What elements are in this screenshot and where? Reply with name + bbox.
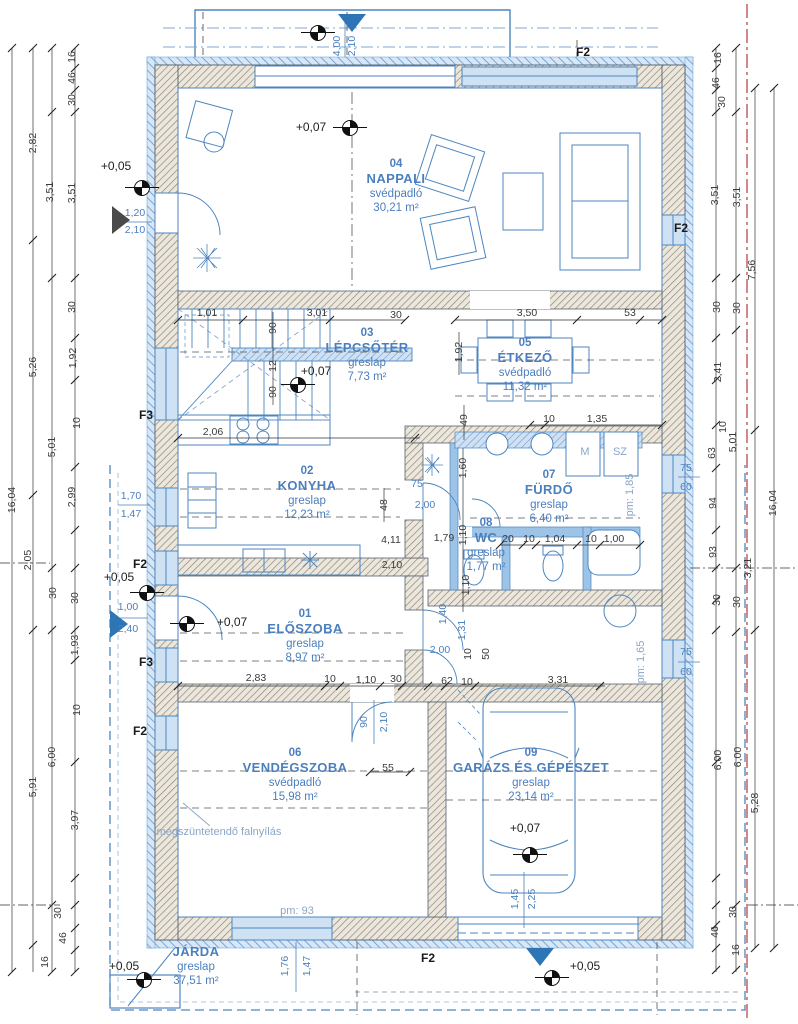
dimension-label: 49 bbox=[458, 414, 470, 426]
room-number: 02 bbox=[278, 464, 337, 478]
opening-dimension-label: 75 bbox=[680, 646, 692, 658]
opening-dimension-label: 1,70 bbox=[121, 490, 141, 502]
dimension-label: 46 bbox=[66, 72, 78, 84]
dimension-label: 30 bbox=[711, 594, 723, 606]
dimension-label: 1,10 bbox=[460, 575, 472, 595]
room-label: 09GARÁZS ÉS GÉPÉSZETgreslap23,14 m² bbox=[453, 746, 609, 804]
note-label: megszüntetendő falnyílás bbox=[157, 826, 282, 838]
dimension-label: 62 bbox=[441, 675, 453, 687]
dimension-label: 3,51 bbox=[44, 182, 56, 202]
opening-dimension-label: 1,20 bbox=[125, 207, 145, 219]
room-label: 03LÉPCSŐTÉRgreslap7,73 m² bbox=[325, 326, 408, 384]
note-label: M bbox=[580, 446, 589, 458]
dimension-label: 30 bbox=[731, 596, 743, 608]
opening-dimension-label: 90 bbox=[358, 716, 370, 728]
dimension-label: 1,92 bbox=[453, 342, 465, 362]
room-number: 03 bbox=[325, 326, 408, 340]
opening-dimension-label: 2,10 bbox=[346, 36, 358, 56]
dimension-label: 30 bbox=[390, 309, 402, 321]
note-label: SZ bbox=[613, 446, 627, 458]
dimension-label: 30 bbox=[69, 592, 81, 604]
opening-dimension-label: 75 bbox=[411, 478, 423, 490]
room-number: 07 bbox=[525, 468, 573, 482]
level-label: +0,05 bbox=[570, 959, 600, 973]
dimension-label: 30 bbox=[66, 94, 78, 106]
opening-dimension-label: 2,25 bbox=[526, 889, 538, 909]
window-type-label: F2 bbox=[576, 45, 590, 59]
dimension-label: 30 bbox=[47, 587, 59, 599]
dimension-label: 93 bbox=[707, 546, 719, 558]
dimension-label: 1,10 bbox=[457, 525, 469, 545]
dimension-label: 3,97 bbox=[69, 810, 81, 830]
dimension-label: 6,00 bbox=[712, 750, 724, 770]
room-number: 09 bbox=[453, 746, 609, 760]
dimension-label: 30 bbox=[727, 906, 739, 918]
dimension-label: 10 bbox=[462, 648, 474, 660]
room-floor: greslap bbox=[325, 356, 408, 370]
level-benchmark-icon bbox=[310, 25, 326, 41]
dimension-label: 4,11 bbox=[381, 534, 401, 546]
note-label: pm: 93 bbox=[280, 905, 314, 917]
dimension-label: 6,00 bbox=[732, 747, 744, 767]
note-label: pm: 1,65 bbox=[635, 641, 647, 684]
dimension-label: 2,41 bbox=[712, 362, 724, 382]
room-name: ÉTKEZŐ bbox=[497, 350, 552, 366]
opening-dimension-label: 4,00 bbox=[331, 36, 343, 56]
opening-dimension-label: 75 bbox=[680, 462, 692, 474]
opening-dimension-label: 2,40 bbox=[118, 623, 138, 635]
opening-dimension-label: 1,47 bbox=[301, 956, 313, 976]
dimension-label: 30 bbox=[716, 96, 728, 108]
opening-dimension-label: 2,10 bbox=[378, 712, 390, 732]
dimension-label: 5,28 bbox=[749, 793, 761, 813]
dimension-label: 5,01 bbox=[46, 437, 58, 457]
dimension-label: 3,50 bbox=[517, 307, 537, 319]
room-label: 07FÜRDŐgreslap6,40 m² bbox=[525, 468, 573, 526]
room-number: 06 bbox=[243, 746, 348, 760]
dimension-label: 30 bbox=[731, 302, 743, 314]
room-floor: greslap bbox=[173, 960, 220, 974]
dimension-label: 30 bbox=[390, 673, 402, 685]
dimension-label: 1,79 bbox=[434, 532, 454, 544]
room-label: 05ÉTKEZŐsvédpadló11,32 m² bbox=[497, 336, 552, 394]
room-label: 06VENDÉGSZOBAsvédpadló15,98 m² bbox=[243, 746, 348, 804]
window-type-label: F3 bbox=[139, 655, 153, 669]
level-benchmark-icon bbox=[290, 377, 306, 393]
opening-dimension-label: 2,10 bbox=[125, 224, 145, 236]
dimension-label: 5,26 bbox=[27, 357, 39, 377]
room-area: 7,73 m² bbox=[325, 370, 408, 384]
dimension-label: 1,10 bbox=[356, 674, 376, 686]
labels-layer: 04NAPPALIsvédpadló30,21 m²03LÉPCSŐTÉRgre… bbox=[0, 0, 798, 1024]
room-number: 08 bbox=[467, 516, 506, 530]
level-benchmark-icon bbox=[136, 972, 152, 988]
dimension-label: 16 bbox=[730, 944, 742, 956]
room-area: 12,23 m² bbox=[278, 508, 337, 522]
window-type-label: F2 bbox=[133, 557, 147, 571]
room-floor: greslap bbox=[467, 546, 506, 560]
level-benchmark-icon bbox=[522, 847, 538, 863]
dimension-label: 2,06 bbox=[203, 426, 223, 438]
dimension-label: 3,51 bbox=[731, 187, 743, 207]
level-label: +0,07 bbox=[217, 615, 247, 629]
dimension-label: 55 bbox=[382, 762, 394, 774]
dimension-label: 1,00 bbox=[604, 533, 624, 545]
room-label: 02KONYHAgreslap12,23 m² bbox=[278, 464, 337, 522]
level-benchmark-icon bbox=[179, 616, 195, 632]
room-area: 37,51 m² bbox=[173, 974, 220, 988]
room-area: 8,97 m² bbox=[267, 651, 342, 665]
room-number: 04 bbox=[367, 157, 426, 171]
room-area: 30,21 m² bbox=[367, 201, 426, 215]
opening-dimension-label: 2,00 bbox=[415, 499, 435, 511]
opening-dimension-label: 1,40 bbox=[437, 604, 449, 624]
dimension-label: 1,93 bbox=[69, 635, 81, 655]
room-name: LÉPCSŐTÉR bbox=[325, 340, 408, 356]
room-area: 15,98 m² bbox=[243, 790, 348, 804]
room-name: FÜRDŐ bbox=[525, 482, 573, 498]
dimension-label: 46 bbox=[710, 77, 722, 89]
dimension-label: 3,31 bbox=[548, 674, 568, 686]
room-area: 23,14 m² bbox=[453, 790, 609, 804]
room-floor: greslap bbox=[267, 637, 342, 651]
opening-dimension-label: 60 bbox=[680, 666, 692, 678]
dimension-label: 6,00 bbox=[46, 747, 58, 767]
room-number: 01 bbox=[267, 607, 342, 621]
dimension-label: 16 bbox=[66, 51, 78, 63]
room-label: JÁRDAgreslap37,51 m² bbox=[173, 944, 220, 988]
dimension-label: 16 bbox=[712, 52, 724, 64]
dimension-label: 2,83 bbox=[246, 672, 266, 684]
window-type-label: F3 bbox=[139, 408, 153, 422]
room-floor: greslap bbox=[278, 494, 337, 508]
dimension-label: 2,05 bbox=[22, 550, 34, 570]
level-label: +0,05 bbox=[104, 570, 134, 584]
dimension-label: 30 bbox=[52, 907, 64, 919]
level-label: +0,07 bbox=[296, 120, 326, 134]
room-floor: greslap bbox=[525, 498, 573, 512]
dimension-label: 63 bbox=[706, 447, 718, 459]
dimension-label: 10 bbox=[461, 676, 473, 688]
room-floor: svédpadló bbox=[367, 187, 426, 201]
opening-dimension-label: 1,76 bbox=[279, 956, 291, 976]
dimension-label: 10 bbox=[71, 704, 83, 716]
dimension-label: 1,35 bbox=[587, 413, 607, 425]
dimension-label: 3,51 bbox=[709, 185, 721, 205]
dimension-label: 1,01 bbox=[197, 307, 217, 319]
room-name: VENDÉGSZOBA bbox=[243, 760, 348, 776]
note-label: pm: 1,85 bbox=[624, 474, 636, 517]
opening-dimension-label: 1,00 bbox=[118, 601, 138, 613]
floor-plan-canvas: 04NAPPALIsvédpadló30,21 m²03LÉPCSŐTÉRgre… bbox=[0, 0, 798, 1024]
dimension-label: 10 bbox=[585, 533, 597, 545]
room-label: 08WCgreslap1,77 m² bbox=[467, 516, 506, 574]
dimension-label: 1,04 bbox=[545, 533, 565, 545]
dimension-label: 30 bbox=[711, 301, 723, 313]
dimension-label: 10 bbox=[543, 413, 555, 425]
room-area: 6,40 m² bbox=[525, 512, 573, 526]
opening-dimension-label: 1,31 bbox=[456, 620, 468, 640]
opening-dimension-label: 2,00 bbox=[430, 644, 450, 656]
dimension-label: 10 bbox=[324, 673, 336, 685]
dimension-label: 90 bbox=[267, 386, 279, 398]
level-benchmark-icon bbox=[544, 970, 560, 986]
level-benchmark-icon bbox=[342, 120, 358, 136]
dimension-label: 5,01 bbox=[727, 432, 739, 452]
room-name: KONYHA bbox=[278, 478, 337, 494]
room-area: 1,77 m² bbox=[467, 560, 506, 574]
dimension-label: 53 bbox=[624, 307, 636, 319]
room-label: 01ELŐSZOBAgreslap8,97 m² bbox=[267, 607, 342, 665]
room-label: 04NAPPALIsvédpadló30,21 m² bbox=[367, 157, 426, 215]
room-name: WC bbox=[467, 530, 506, 546]
room-floor: svédpadló bbox=[497, 366, 552, 380]
dimension-label: 1,92 bbox=[67, 348, 79, 368]
window-type-label: F2 bbox=[421, 951, 435, 965]
room-name: ELŐSZOBA bbox=[267, 621, 342, 637]
room-name: NAPPALI bbox=[367, 171, 426, 187]
level-label: +0,05 bbox=[101, 159, 131, 173]
dimension-label: 10 bbox=[523, 533, 535, 545]
dimension-label: 50 bbox=[480, 648, 492, 660]
dimension-label: 7,56 bbox=[746, 260, 758, 280]
dimension-label: 20 bbox=[502, 533, 514, 545]
level-benchmark-icon bbox=[139, 585, 155, 601]
dimension-label: 48 bbox=[378, 499, 390, 511]
room-name: GARÁZS ÉS GÉPÉSZET bbox=[453, 760, 609, 776]
dimension-label: 3,21 bbox=[742, 558, 754, 578]
room-area: 11,32 m² bbox=[497, 380, 552, 394]
dimension-label: 10 bbox=[71, 417, 83, 429]
opening-dimension-label: 1,45 bbox=[509, 889, 521, 909]
dimension-label: 16,04 bbox=[6, 487, 18, 513]
dimension-label: 3,01 bbox=[307, 307, 327, 319]
dimension-label: 3,51 bbox=[66, 183, 78, 203]
level-label: +0,05 bbox=[109, 959, 139, 973]
dimension-label: 30 bbox=[66, 301, 78, 313]
window-type-label: F2 bbox=[133, 724, 147, 738]
dimension-label: 46 bbox=[709, 926, 721, 938]
dimension-label: 2,10 bbox=[382, 559, 402, 571]
dimension-label: 90 bbox=[267, 322, 279, 334]
room-floor: svédpadló bbox=[243, 776, 348, 790]
dimension-label: 5,91 bbox=[27, 777, 39, 797]
dimension-label: 12 bbox=[267, 360, 279, 372]
opening-dimension-label: 1,47 bbox=[121, 508, 141, 520]
level-label: +0,07 bbox=[301, 364, 331, 378]
level-label: +0,07 bbox=[510, 821, 540, 835]
dimension-label: 16 bbox=[39, 956, 51, 968]
opening-dimension-label: 60 bbox=[680, 481, 692, 493]
room-number: 05 bbox=[497, 336, 552, 350]
dimension-label: 2,99 bbox=[66, 487, 78, 507]
dimension-label: 16,04 bbox=[767, 490, 779, 516]
dimension-label: 46 bbox=[57, 932, 69, 944]
level-benchmark-icon bbox=[134, 180, 150, 196]
dimension-label: 1,60 bbox=[457, 458, 469, 478]
dimension-label: 2,82 bbox=[27, 133, 39, 153]
window-type-label: F2 bbox=[674, 221, 688, 235]
room-name: JÁRDA bbox=[173, 944, 220, 960]
dimension-label: 94 bbox=[707, 497, 719, 509]
room-floor: greslap bbox=[453, 776, 609, 790]
